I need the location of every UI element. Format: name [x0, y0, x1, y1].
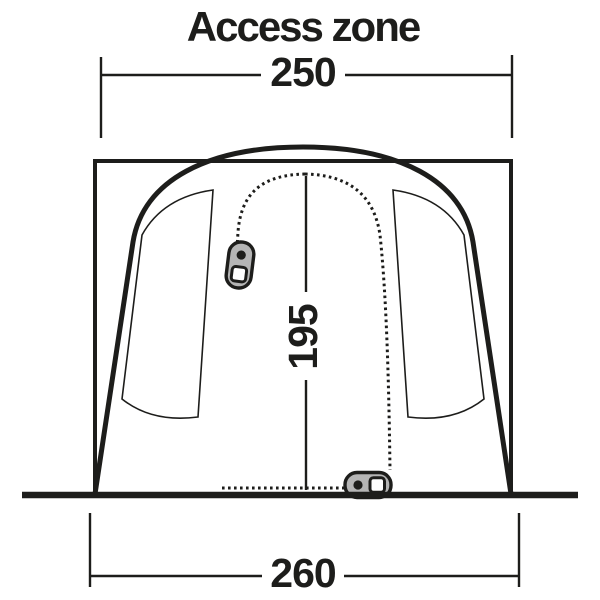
door-height-value: 195: [280, 304, 326, 370]
door-zipper-track-left: [237, 174, 305, 249]
base-width-value: 260: [270, 550, 336, 596]
diagram-canvas: Access zone 250 195 260: [0, 0, 600, 600]
tent-access-zone-diagram: Access zone 250 195 260: [0, 0, 600, 600]
access-zone-width-value: 250: [270, 49, 336, 95]
diagram-title: Access zone: [187, 3, 420, 50]
zipper-pull-icon: [225, 241, 255, 290]
